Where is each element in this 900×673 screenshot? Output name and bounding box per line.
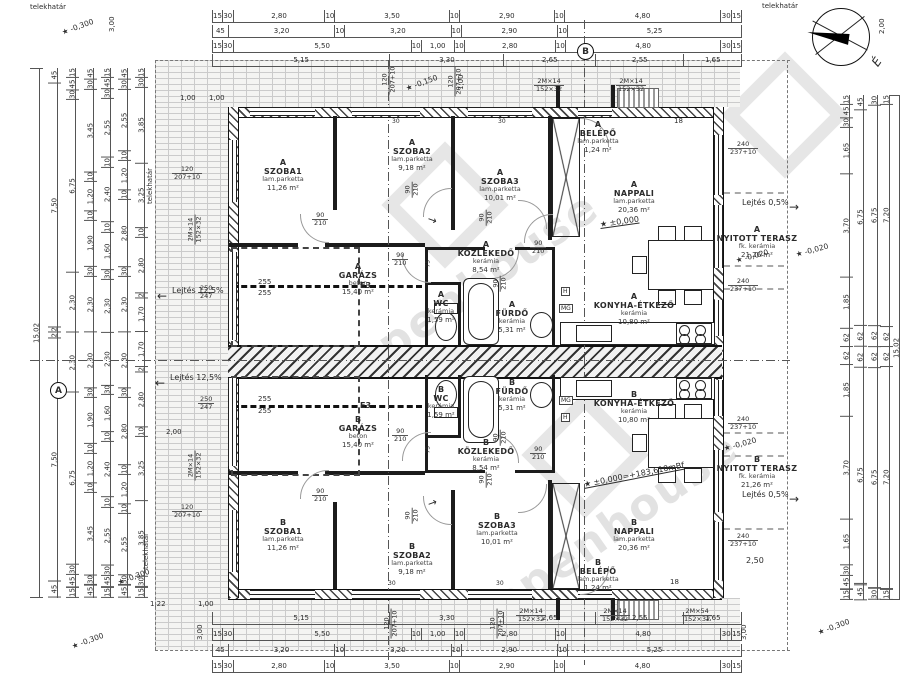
dim-value: 7,50	[48, 338, 61, 581]
dim-value: 15	[66, 68, 79, 78]
dim-value: 3,50	[334, 10, 448, 23]
north-label: É	[869, 55, 885, 69]
room-label: A GARÁZS beton 15,40 m²	[310, 262, 406, 296]
annotation-label: ★ -0,300	[60, 17, 94, 37]
dim-value: 1,65	[840, 519, 853, 565]
room-label: A BELÉPŐ lam.parketta 1,24 m²	[550, 120, 646, 154]
room-material: kerámia	[438, 258, 534, 265]
dim-value: 15	[731, 40, 742, 53]
room-label: B SZOBA3 lam.parketta 10,01 m²	[449, 512, 545, 546]
room-material: lam.parketta	[364, 560, 460, 567]
dim-value: 15	[212, 40, 222, 53]
dim-value: 2,90	[461, 25, 558, 38]
dim-value: 15	[101, 587, 114, 598]
dim-value: 10	[84, 444, 97, 454]
size-tag-bottom: 207+10	[498, 608, 505, 638]
size-tag: 2M×54 152×32	[682, 608, 712, 623]
wall-interior	[333, 116, 337, 210]
chair	[684, 404, 702, 419]
section-marker: A	[50, 382, 67, 399]
dim-value: 1,60	[101, 395, 114, 432]
annotation-label: 3,00	[196, 624, 204, 640]
plot-boundary	[787, 60, 788, 650]
floorplan-canvas: openhouse openhouse	[0, 0, 900, 673]
size-tag: 90 210	[392, 252, 408, 267]
annotation-label: 30	[498, 118, 506, 125]
chair	[684, 468, 702, 483]
dim-value: 30	[84, 80, 97, 90]
dim-value: 1,00	[421, 628, 454, 641]
size-tag-bottom: 210	[312, 220, 328, 227]
size-tag-bottom: 210	[392, 260, 408, 267]
dim-value: 3,45	[84, 493, 97, 576]
dim-value: 10	[84, 172, 97, 182]
size-tag: 2M×14 152×32	[188, 450, 203, 480]
dim-value: 10	[554, 10, 564, 23]
dim-value: 1,85	[840, 277, 853, 329]
dim-value: 30	[118, 267, 131, 277]
dim-value: 1,60	[101, 233, 114, 270]
annotation-label: 30	[392, 118, 400, 125]
dim-value: 1,65	[840, 128, 853, 174]
dim-value: 45	[212, 25, 228, 38]
garage-door-b	[228, 378, 237, 466]
dim-value: 2,80	[233, 660, 325, 673]
size-tag-bottom: 210	[501, 429, 508, 445]
dining-table-a	[648, 240, 714, 290]
annotation-label: 75	[425, 446, 432, 454]
dim-value: 10	[84, 211, 97, 221]
size-tag: 90 210	[405, 181, 420, 197]
size-tag-bottom: 237+10	[728, 541, 758, 548]
room-material: lam.parketta	[235, 176, 331, 183]
room-unit: A	[586, 292, 682, 301]
size-tag: 90 210	[530, 240, 546, 255]
dim-value: 3,85	[135, 88, 148, 164]
room-unit: B	[310, 415, 406, 424]
room-material: kerámia	[464, 318, 560, 325]
dim-value: 45	[854, 95, 867, 110]
window	[714, 300, 723, 336]
dim-value: 15	[840, 589, 853, 600]
dim-value: 6,75	[854, 368, 867, 584]
dim-value: 30	[222, 10, 233, 23]
dim-value: 3,20	[228, 644, 334, 657]
dim-value: 45	[840, 576, 853, 589]
size-tag: 240 237+10	[728, 533, 758, 548]
size-tag: 120 207+10	[172, 504, 202, 519]
dim-value: 3,30	[389, 612, 503, 625]
dim-value: 3,70	[840, 417, 853, 520]
room-area: 9,18 m²	[364, 164, 460, 172]
dim-value: 15	[731, 10, 742, 23]
room-area: 10,80 m²	[586, 318, 682, 326]
dim-value: 2,80	[464, 628, 555, 641]
dim-value: 1,20	[84, 454, 97, 483]
room-material: lam.parketta	[364, 156, 460, 163]
annotation-label: ←	[155, 376, 165, 390]
dim-value: 15,02	[890, 95, 900, 600]
dim-value: 7,50	[48, 84, 61, 327]
annotation-label: 1,22	[150, 600, 166, 608]
room-label: A SZOBA2 lam.parketta 9,18 m²	[364, 138, 460, 172]
dim-value: 15	[840, 95, 853, 105]
annotation-label: ★ -0,300	[816, 617, 850, 637]
chair	[658, 226, 676, 241]
dim-value: 10	[135, 228, 148, 238]
room-area: 5,31 m²	[464, 326, 560, 334]
room-unit: B	[235, 518, 331, 527]
size-tag: 240 237+10	[728, 278, 758, 293]
entry-door-a	[578, 107, 612, 116]
chair	[684, 290, 702, 305]
annotation-label: Lejtés 0,5%	[742, 490, 789, 499]
size-tag: 90 210	[530, 446, 546, 461]
size-tag: 240 237+10	[728, 416, 758, 431]
room-area: 20,36 m²	[586, 206, 682, 214]
annotation-label: 2,50	[746, 556, 764, 565]
dim-value: 10	[451, 25, 461, 38]
dim-value: 2,55	[101, 507, 114, 566]
dim-value: 3,20	[344, 644, 450, 657]
room-unit: A	[452, 168, 548, 177]
annotation-label: ★ ±0,000	[599, 215, 639, 229]
size-tag-bottom: 152×32	[534, 86, 564, 93]
dim-value: 10	[118, 504, 131, 514]
annotation-label: E3	[360, 401, 371, 410]
dim-chain-right-2: 456,7562626,7545	[854, 95, 867, 600]
size-tag: 90 210	[493, 275, 508, 291]
dim-value: 10	[449, 10, 459, 23]
annotation-label: 1,00	[209, 94, 225, 102]
size-tag: 120 207+10	[172, 166, 202, 181]
dim-value: 2,30	[66, 333, 79, 393]
dim-value: 10	[449, 660, 459, 673]
size-tag: 2M×14 152×32	[516, 608, 546, 623]
dim-value: 2	[48, 327, 61, 332]
room-material: lam.parketta	[550, 576, 646, 583]
dim-value: 2,80	[135, 372, 148, 427]
dim-value: 30	[720, 10, 731, 23]
dim-value: 2,40	[101, 167, 114, 222]
annotation-label: telekhatár	[762, 2, 798, 10]
dim-value: 2,30	[118, 333, 131, 388]
dim-value: 30	[135, 78, 148, 88]
dim-chain-left-6: 45302,55101,20102,80302,302,30302,80101,…	[118, 68, 131, 598]
dim-value: 30	[222, 628, 233, 641]
dim-value: 10	[334, 644, 344, 657]
dim-value: 10	[454, 40, 464, 53]
dim-value: 62	[854, 347, 867, 368]
dim-value: 30	[84, 388, 97, 398]
room-label: B BELÉPŐ lam.parketta 1,24 m²	[550, 558, 646, 592]
size-tag: 90 210	[493, 429, 508, 445]
dim-value: 2,90	[459, 660, 554, 673]
door-arc	[518, 484, 547, 513]
size-tag-bottom: 210	[501, 275, 508, 291]
dim-value: 2,55	[101, 99, 114, 158]
room-area: 10,01 m²	[449, 538, 545, 546]
room-label: B NYITOTT TERASZ fk. kerámia 21,26 m²	[709, 455, 805, 489]
porch-wall	[611, 85, 615, 107]
dim-chain-bottom-3: 453,20103,20102,90105,25	[212, 644, 742, 657]
room-unit: A	[550, 120, 646, 129]
size-tag: 2M×14 152×32	[600, 608, 630, 623]
dim-value: 62	[840, 329, 853, 347]
annotation-label: telekhatár	[30, 3, 66, 11]
annotation-label: 18	[670, 578, 679, 586]
room-label: B KÖZLEKEDŐ kerámia 8,54 m²	[438, 438, 534, 472]
annotation-label: MG	[559, 304, 573, 313]
size-tag-bottom: 152×32	[616, 86, 646, 93]
dim-value: 10	[135, 427, 148, 437]
dim-value: 3,45	[84, 90, 97, 173]
dim-value: 2,30	[84, 277, 97, 332]
room-material: kerámia	[438, 456, 534, 463]
dim-value: 5,50	[233, 40, 411, 53]
dim-value: 10	[101, 158, 114, 168]
chair	[632, 434, 647, 452]
annotation-label: ★ -0,300	[70, 631, 104, 651]
room-label: B WC kerámia 1,59 m²	[393, 385, 489, 419]
dim-value: 30	[118, 80, 131, 90]
dim-value: 10	[557, 25, 567, 38]
size-tag-bottom: 207+10	[392, 608, 399, 638]
dim-value: 30	[101, 385, 114, 395]
room-unit: B	[586, 390, 682, 399]
room-area: 10,01 m²	[452, 194, 548, 202]
dim-value: 10	[118, 151, 131, 161]
annotation-label: 255	[258, 407, 271, 415]
dim-chain-top-2: 453,20103,20102,90105,25	[212, 25, 742, 38]
dim-value: 10	[84, 483, 97, 493]
size-tag-bottom: 210	[530, 454, 546, 461]
room-area: 11,26 m²	[235, 544, 331, 552]
room-label: B NAPPALI lam.parketta 20,36 m²	[586, 518, 682, 552]
room-unit: A	[709, 225, 805, 234]
dim-value: 1,90	[84, 221, 97, 267]
party-wall	[228, 345, 722, 379]
size-tag-bottom: 152×32	[196, 214, 203, 244]
size-tag-bottom: 207+10	[172, 174, 202, 181]
size-tag-bottom: 210	[413, 507, 420, 523]
dim-chain-bottom-2: 15305,50101,00102,80104,803015	[212, 628, 742, 641]
size-tag-bottom: 210	[312, 496, 328, 503]
size-tag-bottom: 152×32	[516, 616, 546, 623]
dim-value: 1,20	[118, 475, 131, 504]
dim-chain-left-1: 15,02	[30, 68, 43, 598]
annotation-label: telekhatár	[142, 533, 150, 569]
room-label: A KÖZLEKEDŐ kerámia 8,54 m²	[438, 240, 534, 274]
dim-value: 30	[118, 388, 131, 398]
dim-value: 45	[840, 105, 853, 118]
room-unit: A	[393, 290, 489, 299]
annotation-label: 2,00	[878, 18, 886, 34]
annotation-label: H	[561, 413, 570, 422]
dim-value: 30	[66, 565, 79, 575]
dim-value: 15	[731, 660, 742, 673]
size-tag: 90 210	[312, 488, 328, 503]
annotation-label: 1,00	[180, 94, 196, 102]
annotation-label: Lejtés 0,5%	[742, 198, 789, 207]
size-tag-bottom: 210	[530, 248, 546, 255]
dim-chain-top-3: 15305,50101,00102,80104,803015	[212, 40, 742, 53]
room-material: lam.parketta	[449, 530, 545, 537]
dim-value: 10	[554, 660, 564, 673]
dim-value: 30	[101, 89, 114, 99]
annotation-label: 30	[496, 580, 504, 587]
room-label: B SZOBA1 lam.parketta 11,26 m²	[235, 518, 331, 552]
dim-value: 15,02	[30, 68, 43, 598]
terrace-step	[724, 265, 784, 267]
dim-value: 45	[101, 78, 114, 89]
room-area: 15,40 m²	[310, 288, 406, 296]
dim-value: 10	[101, 432, 114, 442]
annotation-label: 30	[388, 580, 396, 587]
dim-value: 30	[720, 40, 731, 53]
annotation-label: 2,00	[166, 428, 182, 436]
dim-value: 1,85	[840, 365, 853, 417]
dim-value: 45	[84, 68, 97, 80]
annotation-label: 1,00	[457, 74, 465, 90]
room-material: kerámia	[393, 403, 489, 410]
size-tag: 90 210	[479, 471, 494, 487]
room-material: lam.parketta	[550, 138, 646, 145]
dim-value: 10	[334, 25, 344, 38]
dim-chain-left-3: 1545306,752,302,306,75304515	[66, 68, 79, 598]
dim-value: 45	[212, 644, 228, 657]
dim-value: 30	[840, 566, 853, 576]
room-material: lam.parketta	[235, 536, 331, 543]
dim-value: 15	[212, 660, 222, 673]
chair	[632, 256, 647, 274]
annotation-label: 255	[258, 289, 271, 297]
dim-value: 3,30	[389, 54, 503, 67]
room-area: 10,80 m²	[586, 416, 682, 424]
dim-value: 10	[118, 465, 131, 475]
dim-value: 15	[212, 10, 222, 23]
annotation-label: E3	[360, 281, 371, 290]
size-tag-bottom: 237+10	[728, 286, 758, 293]
room-material: lam.parketta	[586, 536, 682, 543]
dim-value: 3,20	[344, 25, 450, 38]
dim-value: 2,80	[118, 398, 131, 465]
size-tag-bottom: 247	[198, 404, 214, 411]
window	[468, 590, 532, 599]
dim-value: 10	[324, 10, 334, 23]
room-unit: A	[586, 180, 682, 189]
room-label: B KONYHA-ÉTKEZŐ kerámia 10,80 m²	[586, 390, 682, 424]
size-tag: 240 237+10	[728, 141, 758, 156]
dim-value: 4,80	[565, 628, 721, 641]
size-tag-bottom: 207+10	[390, 64, 397, 94]
room-unit: B	[393, 385, 489, 394]
room-label: A FÜRDŐ kerámia 5,31 m²	[464, 300, 560, 334]
size-tag: 90 210	[479, 209, 494, 225]
dim-value: 30	[101, 566, 114, 576]
dim-value: 2,30	[118, 277, 131, 332]
size-tag: 120 207+10	[490, 608, 505, 638]
dim-value: 30	[101, 270, 114, 280]
kitchen-sink-a	[576, 325, 612, 342]
room-unit: A	[235, 158, 331, 167]
dim-value: 2,30	[66, 273, 79, 333]
room-area: 11,26 m²	[235, 184, 331, 192]
dim-value: 10	[411, 628, 421, 641]
dim-value: 4,80	[564, 10, 721, 23]
room-area: 20,36 m²	[586, 544, 682, 552]
dim-value: 10	[411, 40, 421, 53]
dim-value: 2,40	[101, 442, 114, 497]
dim-value: 3,25	[135, 437, 148, 501]
room-label: A SZOBA3 lam.parketta 10,01 m²	[452, 168, 548, 202]
size-tag-bottom: 210	[392, 436, 408, 443]
dim-value: 2,80	[135, 238, 148, 293]
dim-value: 5,15	[212, 54, 389, 67]
dim-value: 10	[451, 644, 461, 657]
dim-value: 1,70	[135, 333, 148, 367]
size-tag-bottom: 152×32	[682, 616, 712, 623]
room-material: kerámia	[586, 408, 682, 415]
room-unit: B	[586, 518, 682, 527]
dim-value: 3,50	[334, 660, 448, 673]
size-tag-bottom: 152×32	[196, 450, 203, 480]
dim-value: 15	[135, 68, 148, 78]
room-material: lam.parketta	[452, 186, 548, 193]
dim-value: 2,90	[459, 10, 554, 23]
wall-interior	[333, 502, 337, 589]
dim-value: 3,20	[228, 25, 334, 38]
dim-value: 30	[66, 90, 79, 100]
north-compass: É	[812, 8, 870, 66]
dim-value: 1,90	[84, 398, 97, 444]
annotation-label: →	[789, 200, 799, 214]
room-area: 21,26 m²	[709, 481, 805, 489]
dim-value: 62	[854, 326, 867, 347]
dim-chain-bottom-4: 15302,80103,50102,90104,803015	[212, 660, 742, 673]
dim-value: 6,75	[66, 392, 79, 565]
dim-value: 45	[854, 584, 867, 600]
annotation-label: MG	[559, 396, 573, 405]
dim-value: 1,00	[421, 40, 454, 53]
room-label: A KONYHA-ÉTKEZŐ kerámia 10,80 m²	[586, 292, 682, 326]
dim-value: 30	[720, 628, 731, 641]
dim-value: 5,15	[212, 612, 389, 625]
dim-value: 15	[135, 587, 148, 598]
dim-chain-top-1: 15302,80103,50102,90104,803015	[212, 10, 742, 23]
dim-chain-left-7: 15303,853,25102,8021,701,7022,80103,253,…	[135, 68, 148, 598]
dim-value: 45	[66, 78, 79, 90]
garage-door-a	[228, 252, 237, 340]
dim-value: 62	[840, 347, 853, 365]
dim-value: 2,55	[118, 90, 131, 151]
dim-value: 6,75	[854, 110, 867, 326]
size-tag: 120 207+10	[384, 608, 399, 638]
size-tag: 2M×14 152×32	[188, 214, 203, 244]
room-unit: B	[438, 438, 534, 447]
size-tag: 250 247	[198, 396, 214, 411]
size-tag: 90 210	[312, 212, 328, 227]
size-tag: 2M×14 152×32	[616, 78, 646, 93]
dim-value: 2,55	[118, 514, 131, 575]
size-tag-bottom: 237+10	[728, 149, 758, 156]
dim-value: 45	[84, 585, 97, 598]
dim-value: 45	[48, 68, 61, 84]
annotation-label: Lejtés 12,5%	[170, 373, 222, 382]
size-tag: 90 210	[392, 428, 408, 443]
dim-value: 30	[222, 40, 233, 53]
dim-value: 2,30	[84, 333, 97, 388]
